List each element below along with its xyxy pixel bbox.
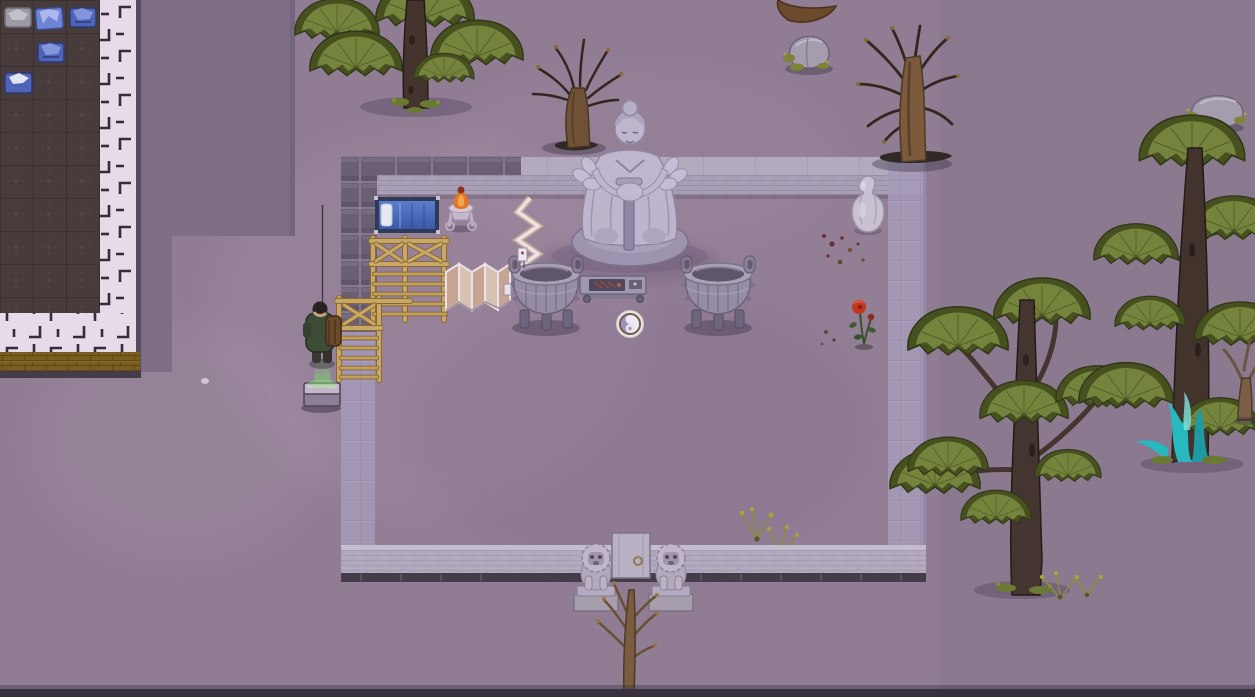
- game-viewport: [0, 0, 1255, 697]
- altar-table[interactable]: [580, 276, 646, 303]
- stone-slab[interactable]: [301, 380, 341, 413]
- cauldron-right[interactable]: [680, 256, 756, 336]
- wall-left-lower[interactable]: [341, 332, 375, 546]
- item-blue-shirt[interactable]: [70, 8, 96, 27]
- gold-brick-wall[interactable]: [0, 352, 141, 378]
- cauldron-left[interactable]: [508, 256, 584, 336]
- item-blue-shirt[interactable]: [38, 43, 64, 62]
- screen-bottom-edge: [0, 689, 1255, 697]
- folding-screen[interactable]: [446, 264, 510, 310]
- item-gray-bundle[interactable]: [5, 8, 31, 27]
- yinyang-plate[interactable]: [617, 311, 644, 338]
- storage-room: [0, 0, 100, 313]
- bed[interactable]: [374, 196, 440, 234]
- item-blue-shirt[interactable]: [5, 73, 32, 93]
- item-blue-trousers[interactable]: [35, 7, 63, 30]
- pebble: [201, 378, 209, 384]
- screen-bottom-fade: [0, 685, 1255, 689]
- gate-door[interactable]: [612, 533, 650, 578]
- wall-right[interactable]: [888, 156, 926, 578]
- bedroll: [326, 316, 341, 346]
